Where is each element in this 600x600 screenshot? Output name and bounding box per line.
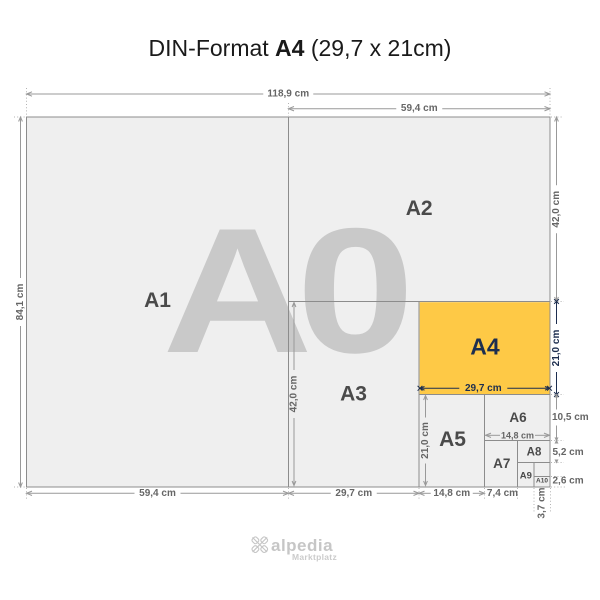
svg-text:3,7 cm: 3,7 cm <box>536 487 547 518</box>
svg-text:14,8 cm: 14,8 cm <box>501 430 534 440</box>
svg-text:21,0 cm: 21,0 cm <box>420 422 431 459</box>
svg-text:118,9 cm: 118,9 cm <box>267 89 309 100</box>
svg-text:A1: A1 <box>144 289 171 312</box>
svg-text:A8: A8 <box>527 447 542 459</box>
svg-text:2,6 cm: 2,6 cm <box>553 476 584 487</box>
svg-text:14,8 cm: 14,8 cm <box>433 488 470 499</box>
svg-text:DIN-Format A4 (29,7 x 21cm): DIN-Format A4 (29,7 x 21cm) <box>149 35 452 61</box>
svg-text:84,1 cm: 84,1 cm <box>15 284 26 321</box>
svg-text:A9: A9 <box>520 470 532 481</box>
svg-text:A: A <box>162 192 312 391</box>
svg-text:A3: A3 <box>340 383 367 406</box>
svg-text:A2: A2 <box>406 197 433 220</box>
svg-text:0: 0 <box>296 191 414 391</box>
svg-text:59,4 cm: 59,4 cm <box>401 103 438 114</box>
svg-text:A7: A7 <box>493 456 510 471</box>
svg-text:10,5 cm: 10,5 cm <box>552 412 589 423</box>
svg-text:A6: A6 <box>509 410 527 425</box>
svg-text:A4: A4 <box>470 334 500 360</box>
svg-text:Marktplatz: Marktplatz <box>292 552 337 562</box>
svg-text:A5: A5 <box>439 428 466 451</box>
svg-text:29,7 cm: 29,7 cm <box>465 383 502 394</box>
svg-text:42,0 cm: 42,0 cm <box>551 191 562 228</box>
svg-text:5,2 cm: 5,2 cm <box>553 447 584 458</box>
svg-text:A10: A10 <box>536 478 548 485</box>
svg-text:59,4 cm: 59,4 cm <box>139 488 176 499</box>
svg-text:29,7 cm: 29,7 cm <box>335 488 372 499</box>
svg-text:42,0 cm: 42,0 cm <box>289 376 300 413</box>
svg-text:21,0 cm: 21,0 cm <box>551 330 562 367</box>
svg-text:7,4 cm: 7,4 cm <box>487 488 518 499</box>
